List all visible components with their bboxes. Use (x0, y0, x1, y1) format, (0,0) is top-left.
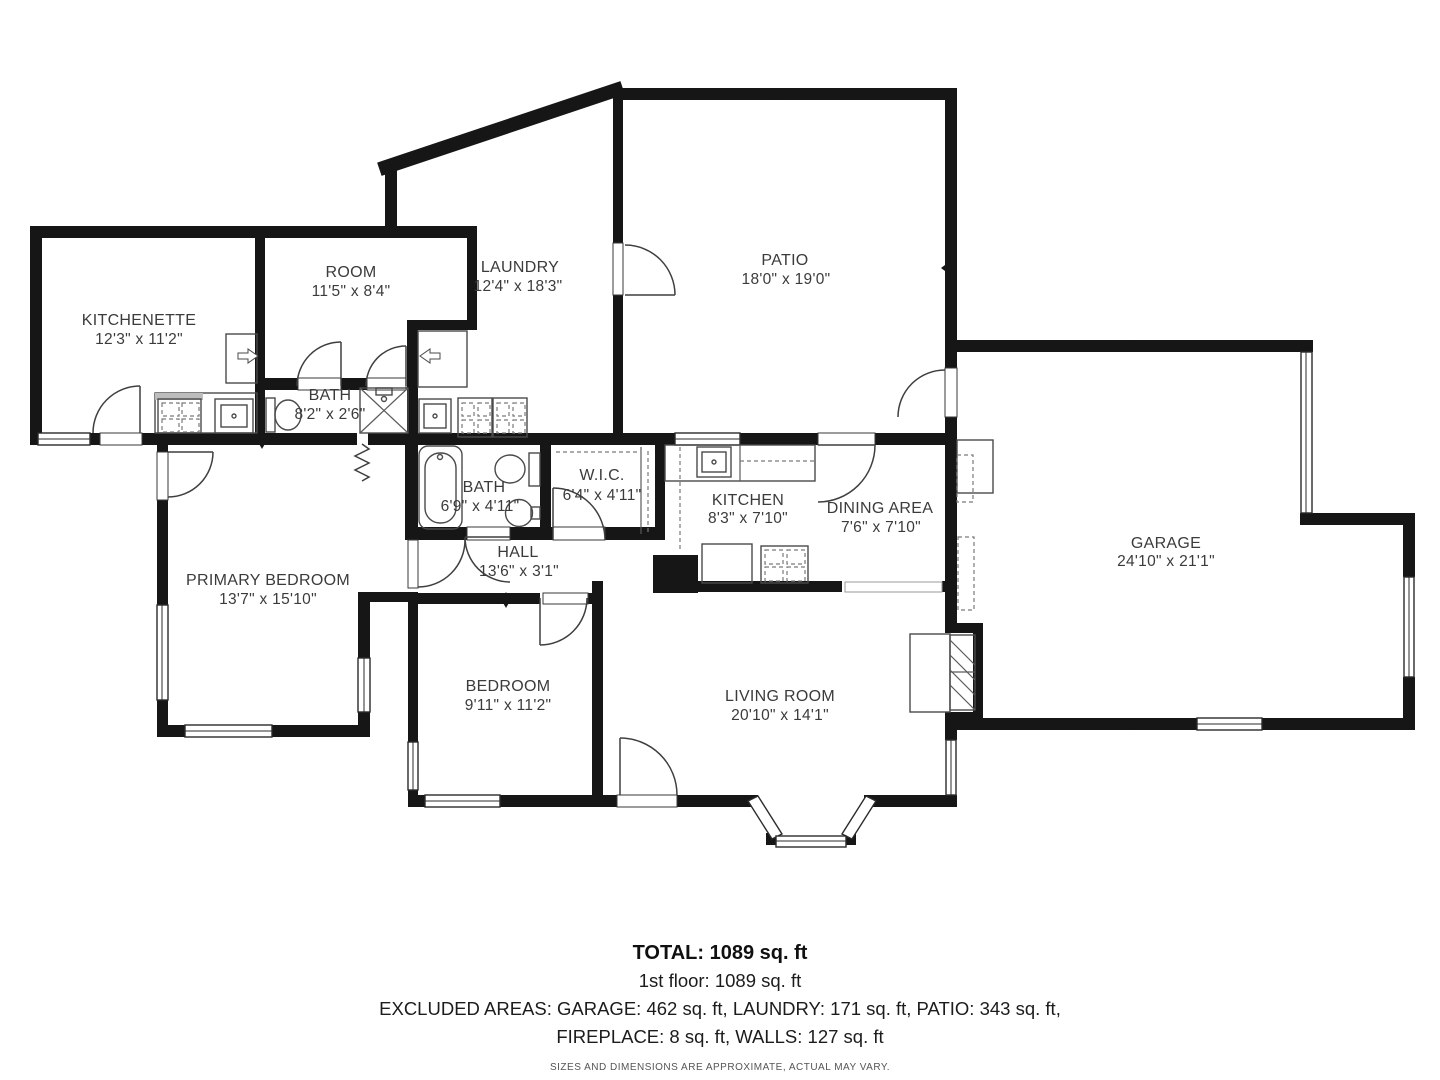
wall-arrows (31, 91, 1139, 729)
garage-fixtures (957, 440, 993, 610)
svg-text:ROOM: ROOM (326, 264, 377, 281)
svg-text:PRIMARY BEDROOM: PRIMARY BEDROOM (186, 572, 350, 589)
laundry-appliances (419, 398, 527, 437)
svg-text:GARAGE: GARAGE (1131, 535, 1201, 552)
svg-text:18'0" x 19'0": 18'0" x 19'0" (742, 271, 831, 288)
svg-text:DINING AREA: DINING AREA (827, 500, 933, 517)
summary-footer: TOTAL: 1089 sq. ft 1st floor: 1089 sq. f… (0, 942, 1440, 1073)
room-label-room: ROOM 11'5" x 8'4" (312, 264, 391, 300)
room-label-dining-area: DINING AREA 7'6" x 7'10" (827, 500, 933, 536)
svg-text:9'11" x 11'2": 9'11" x 11'2" (465, 697, 552, 714)
room-label-living-room: LIVING ROOM 20'10" x 14'1" (725, 688, 835, 724)
svg-text:8'2" x 2'6": 8'2" x 2'6" (294, 406, 365, 423)
room-label-bath: BATH 6'9" x 4'11" (441, 479, 520, 515)
svg-text:6'9" x 4'11": 6'9" x 4'11" (441, 498, 520, 515)
svg-text:LAUNDRY: LAUNDRY (481, 259, 559, 276)
svg-text:PATIO: PATIO (761, 252, 808, 269)
svg-text:BATH: BATH (463, 479, 506, 496)
svg-text:HALL: HALL (497, 544, 538, 561)
room-label-hall: HALL 13'6" x 3'1" (479, 544, 559, 580)
svg-text:6'4" x 4'11": 6'4" x 4'11" (563, 487, 642, 504)
floor-plan-page: KITCHENETTE 12'3" x 11'2" ROOM 11'5" x 8… (0, 0, 1440, 1080)
room-label-kitchenette: KITCHENETTE 12'3" x 11'2" (82, 312, 196, 348)
floor-plan-drawing: KITCHENETTE 12'3" x 11'2" ROOM 11'5" x 8… (0, 0, 1440, 1080)
svg-text:BEDROOM: BEDROOM (466, 678, 551, 695)
excluded-areas-line2: FIREPLACE: 8 sq. ft, WALLS: 127 sq. ft (0, 1026, 1440, 1048)
wall-opening-zigzag (355, 444, 369, 481)
room-label-bath-small: BATH 8'2" x 2'6" (294, 387, 365, 423)
svg-text:BATH: BATH (309, 387, 352, 404)
svg-text:LIVING ROOM: LIVING ROOM (725, 688, 835, 705)
svg-text:13'7" x 15'10": 13'7" x 15'10" (219, 591, 317, 608)
svg-text:13'6" x 3'1": 13'6" x 3'1" (479, 563, 559, 580)
room-label-kitchen: KITCHEN 8'3" x 7'10" (708, 492, 788, 527)
svg-text:KITCHEN: KITCHEN (712, 492, 784, 509)
fireplace (910, 634, 975, 712)
room-label-wic: W.I.C. 6'4" x 4'11" (563, 467, 642, 504)
total-area-text: TOTAL: 1089 sq. ft (0, 942, 1440, 965)
disclaimer-text: SIZES AND DIMENSIONS ARE APPROXIMATE, AC… (0, 1062, 1440, 1073)
room-label-bedroom: BEDROOM 9'11" x 11'2" (465, 678, 552, 714)
svg-text:KITCHENETTE: KITCHENETTE (82, 312, 196, 329)
svg-text:8'3" x 7'10": 8'3" x 7'10" (708, 510, 788, 527)
svg-text:7'6" x 7'10": 7'6" x 7'10" (841, 519, 921, 536)
room-label-primary-bedroom: PRIMARY BEDROOM 13'7" x 15'10" (186, 572, 350, 608)
excluded-areas-line1: EXCLUDED AREAS: GARAGE: 462 sq. ft, LAUN… (0, 998, 1440, 1020)
svg-text:W.I.C.: W.I.C. (579, 467, 624, 484)
kitchenette-counter (155, 393, 257, 433)
svg-text:11'5" x 8'4": 11'5" x 8'4" (312, 283, 391, 300)
svg-text:20'10" x 14'1": 20'10" x 14'1" (731, 707, 829, 724)
svg-text:24'10" x 21'1": 24'10" x 21'1" (1117, 553, 1215, 570)
first-floor-area-text: 1st floor: 1089 sq. ft (0, 970, 1440, 992)
room-label-garage: GARAGE 24'10" x 21'1" (1117, 535, 1215, 570)
svg-text:12'3" x 11'2": 12'3" x 11'2" (95, 331, 183, 348)
room-label-laundry: LAUNDRY 12'4" x 18'3" (474, 259, 563, 295)
svg-text:12'4" x 18'3": 12'4" x 18'3" (474, 278, 563, 295)
room-label-patio: PATIO 18'0" x 19'0" (742, 252, 831, 288)
